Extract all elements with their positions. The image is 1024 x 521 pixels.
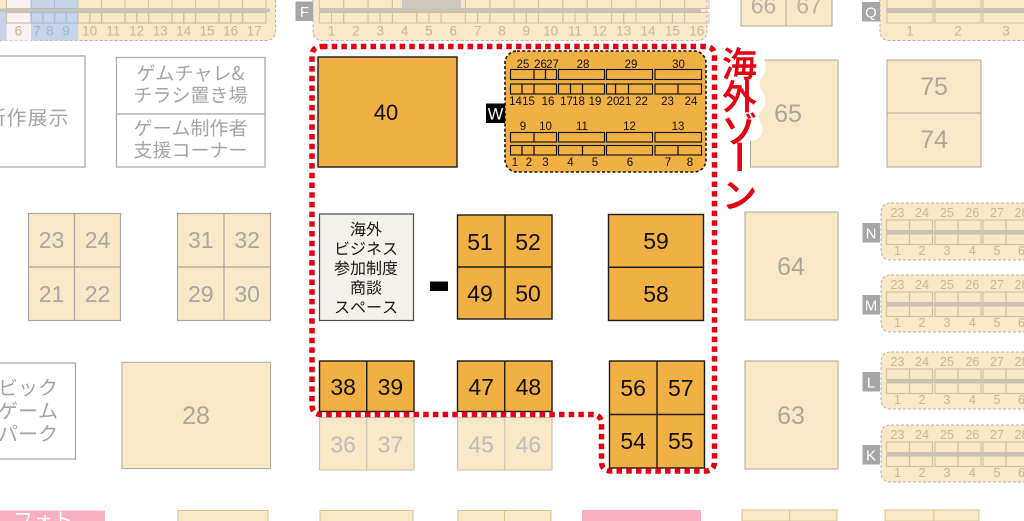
svg-text:26: 26	[965, 355, 979, 369]
svg-text:11: 11	[106, 24, 120, 39]
svg-text:29: 29	[188, 281, 214, 307]
svg-text:26: 26	[965, 428, 979, 442]
svg-text:2: 2	[919, 393, 926, 407]
svg-text:59: 59	[643, 228, 669, 254]
svg-text:52: 52	[515, 229, 541, 255]
svg-text:10: 10	[82, 24, 97, 39]
svg-text:25: 25	[940, 278, 954, 292]
svg-text:3: 3	[944, 316, 951, 330]
svg-text:22: 22	[85, 281, 111, 307]
svg-text:5: 5	[994, 244, 1001, 258]
svg-text:31: 31	[188, 227, 214, 253]
svg-text:4: 4	[401, 24, 409, 39]
svg-text:25: 25	[940, 206, 954, 220]
svg-text:23: 23	[891, 428, 905, 442]
svg-text:14: 14	[640, 24, 656, 39]
svg-text:Q: Q	[865, 5, 877, 22]
svg-text:11: 11	[576, 121, 588, 133]
svg-text:10: 10	[543, 24, 558, 39]
svg-text:16: 16	[223, 24, 238, 39]
svg-text:23: 23	[39, 227, 65, 253]
svg-text:28: 28	[1015, 355, 1024, 369]
svg-text:38: 38	[330, 374, 356, 400]
svg-text:1: 1	[906, 24, 914, 39]
svg-text:16: 16	[689, 24, 704, 39]
svg-text:48: 48	[516, 374, 542, 400]
svg-text:8: 8	[687, 157, 693, 169]
svg-text:6: 6	[1018, 393, 1024, 407]
svg-text:27: 27	[990, 278, 1004, 292]
svg-text:24: 24	[915, 206, 929, 220]
svg-text:2: 2	[919, 316, 926, 330]
svg-text:8: 8	[498, 24, 506, 39]
svg-text:2: 2	[526, 157, 532, 169]
svg-text:27: 27	[990, 428, 1004, 442]
svg-text:14: 14	[176, 24, 192, 39]
svg-text:1: 1	[894, 393, 901, 407]
svg-text:28: 28	[1015, 428, 1024, 442]
svg-text:23: 23	[661, 96, 674, 108]
svg-text:21: 21	[619, 96, 632, 108]
svg-text:66: 66	[751, 0, 777, 19]
svg-text:37: 37	[378, 431, 404, 457]
svg-text:6: 6	[1018, 466, 1024, 480]
svg-text:3: 3	[376, 24, 384, 39]
svg-text:21: 21	[39, 281, 65, 307]
svg-text:17: 17	[247, 24, 262, 39]
svg-text:65: 65	[774, 100, 802, 128]
svg-text:9: 9	[520, 121, 526, 133]
svg-text:51: 51	[467, 229, 493, 255]
svg-text:6: 6	[627, 157, 633, 169]
svg-text:9: 9	[62, 24, 70, 39]
svg-text:K: K	[866, 448, 876, 465]
svg-text:2: 2	[919, 244, 926, 258]
svg-text:6: 6	[1018, 316, 1024, 330]
svg-text:24: 24	[85, 227, 111, 253]
svg-text:49: 49	[467, 281, 493, 307]
svg-text:74: 74	[920, 126, 948, 154]
svg-text:46: 46	[516, 431, 542, 457]
svg-text:32: 32	[234, 227, 260, 253]
svg-text:7: 7	[665, 157, 671, 169]
svg-text:8: 8	[46, 24, 54, 39]
svg-text:24: 24	[685, 96, 698, 108]
svg-text:10: 10	[539, 121, 552, 133]
svg-text:7: 7	[474, 24, 482, 39]
svg-text:3: 3	[944, 466, 951, 480]
svg-text:W: W	[488, 106, 504, 124]
svg-text:30: 30	[234, 281, 260, 307]
svg-text:9: 9	[523, 24, 531, 39]
svg-text:58: 58	[643, 281, 669, 307]
svg-text:57: 57	[668, 375, 694, 401]
svg-text:24: 24	[915, 428, 929, 442]
svg-text:20: 20	[607, 96, 620, 108]
svg-text:24: 24	[915, 278, 929, 292]
svg-text:63: 63	[777, 402, 805, 430]
svg-text:12: 12	[592, 24, 607, 39]
svg-text:28: 28	[182, 402, 210, 430]
svg-text:56: 56	[620, 375, 646, 401]
svg-text:26: 26	[965, 206, 979, 220]
svg-text:7: 7	[33, 24, 41, 39]
svg-text:3: 3	[542, 157, 548, 169]
svg-text:15: 15	[522, 96, 535, 108]
svg-text:1: 1	[894, 316, 901, 330]
svg-text:19: 19	[589, 96, 602, 108]
svg-text:18: 18	[572, 96, 585, 108]
svg-text:1: 1	[894, 466, 901, 480]
svg-text:5: 5	[994, 466, 1001, 480]
svg-text:5: 5	[592, 157, 598, 169]
svg-text:5: 5	[994, 316, 1001, 330]
svg-text:3: 3	[944, 244, 951, 258]
svg-text:4: 4	[969, 466, 976, 480]
svg-text:14: 14	[509, 96, 522, 108]
svg-text:23: 23	[891, 206, 905, 220]
svg-text:5: 5	[994, 393, 1001, 407]
svg-text:5: 5	[425, 24, 433, 39]
svg-text:24: 24	[915, 355, 929, 369]
svg-text:6: 6	[1018, 244, 1024, 258]
svg-text:17: 17	[560, 96, 573, 108]
svg-text:13: 13	[672, 121, 685, 133]
svg-text:39: 39	[378, 374, 404, 400]
svg-text:22: 22	[635, 96, 648, 108]
svg-text:28: 28	[1015, 206, 1024, 220]
svg-text:45: 45	[468, 431, 494, 457]
svg-text:11: 11	[568, 24, 582, 39]
svg-text:6: 6	[15, 24, 23, 39]
svg-text:1: 1	[894, 244, 901, 258]
svg-text:25: 25	[940, 428, 954, 442]
svg-text:13: 13	[616, 24, 631, 39]
svg-text:67: 67	[796, 0, 822, 19]
svg-text:13: 13	[153, 24, 168, 39]
svg-text:27: 27	[990, 206, 1004, 220]
svg-text:64: 64	[777, 253, 805, 281]
svg-text:2: 2	[954, 24, 962, 39]
svg-text:4: 4	[567, 157, 574, 169]
svg-text:28: 28	[1015, 278, 1024, 292]
svg-text:75: 75	[920, 73, 948, 101]
svg-text:12: 12	[623, 121, 636, 133]
svg-text:25: 25	[940, 355, 954, 369]
svg-text:12: 12	[129, 24, 144, 39]
svg-text:26: 26	[965, 278, 979, 292]
svg-text:15: 15	[200, 24, 215, 39]
svg-text:2: 2	[919, 466, 926, 480]
svg-text:M: M	[865, 298, 878, 315]
svg-text:3: 3	[1002, 24, 1010, 39]
svg-text:L: L	[867, 375, 875, 392]
svg-text:55: 55	[668, 428, 694, 454]
svg-text:3: 3	[944, 393, 951, 407]
svg-text:50: 50	[515, 281, 541, 307]
svg-text:23: 23	[891, 355, 905, 369]
svg-text:6: 6	[449, 24, 457, 39]
svg-text:54: 54	[620, 428, 646, 454]
svg-text:N: N	[866, 226, 877, 243]
svg-text:4: 4	[969, 244, 976, 258]
svg-text:2: 2	[352, 24, 360, 39]
svg-text:4: 4	[969, 393, 976, 407]
svg-text:23: 23	[891, 278, 905, 292]
svg-text:1: 1	[512, 157, 518, 169]
svg-text:16: 16	[542, 96, 555, 108]
svg-text:15: 15	[665, 24, 680, 39]
svg-text:F: F	[300, 4, 309, 21]
svg-text:4: 4	[969, 316, 976, 330]
svg-text:47: 47	[468, 374, 494, 400]
svg-text:27: 27	[990, 355, 1004, 369]
svg-text:36: 36	[330, 431, 356, 457]
svg-text:1: 1	[328, 24, 336, 39]
svg-text:40: 40	[374, 100, 398, 125]
